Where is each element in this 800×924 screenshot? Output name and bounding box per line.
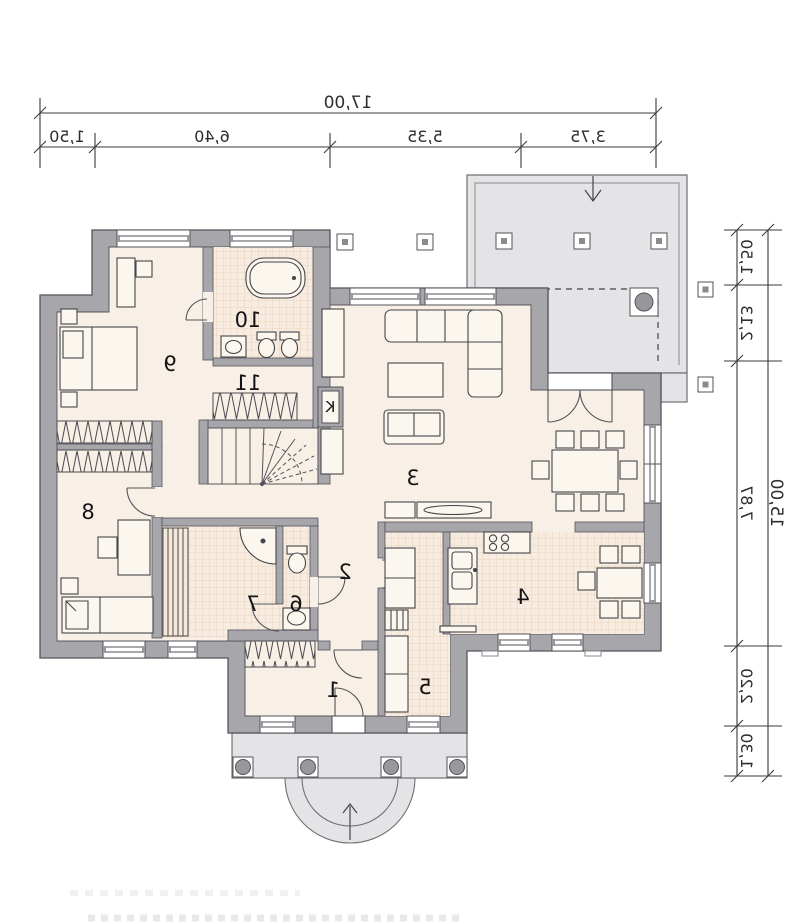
- tv-bench: [385, 502, 491, 518]
- sofa: [384, 410, 444, 444]
- window-sill: [482, 651, 498, 656]
- floor-plan-page: 17,00 1,50 6,40 5,35 3,75 15,00 1,50 2,1…: [0, 0, 800, 924]
- dimension-ticks-top: [34, 107, 662, 153]
- bathtub: [246, 258, 305, 298]
- wardrobe-hall: [245, 641, 315, 667]
- room-label-8: 8: [81, 500, 94, 524]
- terrace-round-column: [630, 288, 658, 316]
- dim-top-seg4: 3,75: [570, 127, 606, 146]
- room-label-7: 7: [246, 592, 259, 616]
- room-label-11: 11: [235, 371, 262, 395]
- window: [117, 230, 190, 247]
- room-label-9: 9: [163, 352, 176, 376]
- chair: [98, 537, 117, 558]
- room-label-2: 2: [338, 560, 351, 584]
- window: [644, 425, 661, 503]
- nightstand: [61, 392, 77, 407]
- room-label-10: 10: [235, 308, 262, 332]
- wardrobe-room8: [57, 450, 152, 472]
- room-label-1: 1: [326, 678, 339, 702]
- sideboard: [322, 309, 344, 377]
- kitchen-sink-counter: [448, 548, 477, 604]
- dim-right-seg2: 2,13: [737, 305, 756, 341]
- room-label-3: 3: [406, 466, 419, 490]
- side-table: [61, 578, 78, 594]
- bed-single: [62, 597, 153, 633]
- dim-right-seg5: 1,30: [737, 733, 756, 769]
- dim-top-seg2: 6,40: [194, 127, 230, 146]
- window: [103, 641, 145, 658]
- window: [425, 288, 496, 305]
- desk: [117, 258, 135, 307]
- chair: [136, 261, 152, 277]
- nightstand: [61, 309, 77, 324]
- sink: [221, 336, 246, 357]
- dim-right-seg3: 7,87: [737, 485, 756, 521]
- entrance-porch: [232, 733, 467, 843]
- dim-right-seg4: 2,20: [737, 668, 756, 704]
- window: [552, 634, 583, 651]
- wardrobe-room9: [57, 421, 152, 443]
- staircase: [208, 428, 318, 486]
- window: [230, 230, 293, 247]
- coffee-table: [388, 363, 443, 397]
- toilet: [257, 332, 276, 358]
- window: [498, 634, 530, 651]
- dim-top-seg3: 5,35: [407, 127, 443, 146]
- toilet: [287, 546, 307, 573]
- bidet: [280, 332, 299, 358]
- window: [644, 563, 661, 603]
- window: [168, 641, 197, 658]
- dim-top-total: 17,00: [324, 93, 373, 113]
- floor-plan-drawing: 17,00 1,50 6,40 5,35 3,75 15,00 1,50 2,1…: [0, 0, 800, 924]
- window-sill: [585, 651, 601, 656]
- bed-double: [60, 327, 137, 390]
- desk: [118, 520, 150, 575]
- room-label-5: 5: [418, 675, 431, 699]
- wardrobe-room11: [213, 393, 297, 420]
- window: [407, 716, 440, 733]
- cropped-footer-text: [70, 893, 462, 918]
- dim-right-seg1: 1,50: [737, 239, 756, 275]
- window: [350, 288, 420, 305]
- room-label-4: 4: [516, 585, 529, 609]
- dim-top-seg1: 1,50: [49, 127, 85, 146]
- room-label-fireplace: K: [324, 398, 335, 416]
- sideboard: [321, 429, 343, 474]
- dim-right-total: 15,00: [766, 479, 786, 528]
- stove: [484, 532, 530, 553]
- room-label-6: 6: [289, 592, 302, 616]
- window: [260, 716, 295, 733]
- kitchen-shelf: [440, 626, 476, 632]
- sauna-benches: [163, 528, 188, 636]
- fireplace: K: [318, 387, 343, 427]
